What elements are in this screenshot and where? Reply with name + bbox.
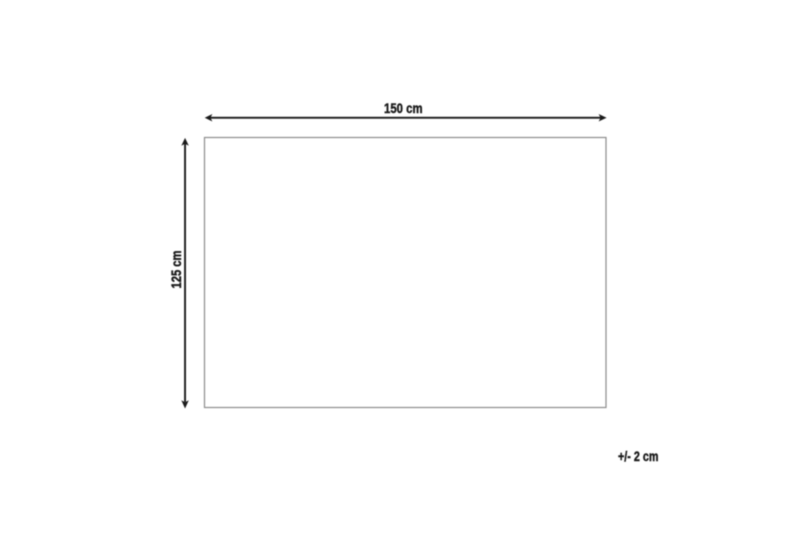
svg-text:125 cm: 125 cm — [169, 250, 184, 288]
svg-text:150 cm: 150 cm — [384, 101, 423, 116]
svg-text:+/- 2 cm: +/- 2 cm — [618, 449, 659, 464]
